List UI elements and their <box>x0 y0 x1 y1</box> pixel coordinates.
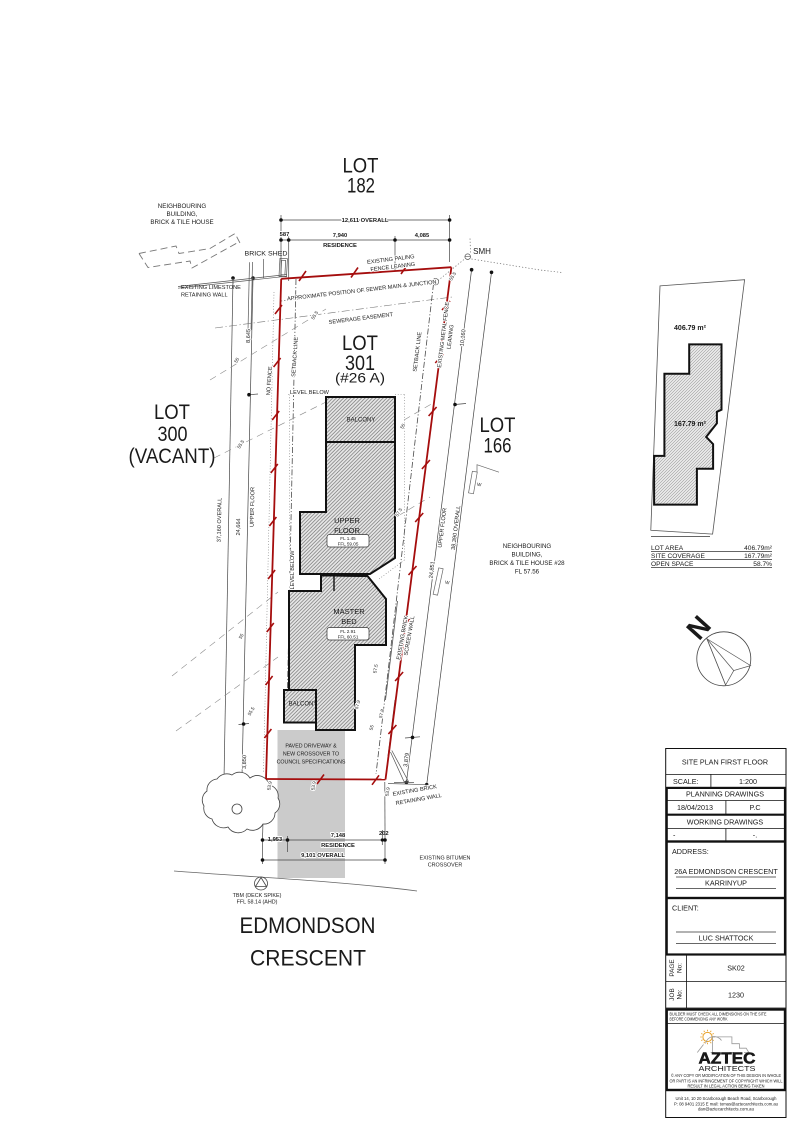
svg-text:© ANY COPY OR MODIFICATION OF: © ANY COPY OR MODIFICATION OF THIS DESIG… <box>671 1072 781 1078</box>
svg-text:12,611 OVERALL: 12,611 OVERALL <box>342 218 389 224</box>
svg-text:37,160 OVERALL: 37,160 OVERALL <box>217 498 224 543</box>
svg-text:SCALE:: SCALE: <box>673 777 699 786</box>
svg-text:8,645: 8,645 <box>246 329 252 343</box>
svg-text:LEVEL BELOW: LEVEL BELOW <box>290 390 330 396</box>
svg-text:KARRINYUP: KARRINYUP <box>705 879 747 888</box>
svg-text:BRICK & TILE HOUSE #28: BRICK & TILE HOUSE #28 <box>489 560 565 567</box>
svg-text:(#26 A): (#26 A) <box>335 370 385 386</box>
svg-text:OPEN SPACE: OPEN SPACE <box>651 561 694 568</box>
svg-text:WORKING DRAWINGS: WORKING DRAWINGS <box>687 818 764 827</box>
svg-text:18/04/2013: 18/04/2013 <box>677 803 713 812</box>
svg-text:P.C: P.C <box>749 803 760 812</box>
svg-text:OR PART IS AN INFRINGEMENT OF: OR PART IS AN INFRINGEMENT OF COPYRIGHT … <box>670 1078 783 1083</box>
svg-text:NEW CROSSOVER TO: NEW CROSSOVER TO <box>283 752 339 758</box>
svg-text:UPPER: UPPER <box>334 516 360 525</box>
svg-text:406.79m²: 406.79m² <box>744 545 773 552</box>
svg-text:No:: No: <box>677 989 684 999</box>
svg-text:EXISTING BITUMEN: EXISTING BITUMEN <box>420 856 471 862</box>
svg-text:PAGE: PAGE <box>669 959 676 976</box>
svg-text:SMH: SMH <box>473 247 491 256</box>
svg-text:RESIDENCE: RESIDENCE <box>323 243 357 249</box>
svg-text:167.79m²: 167.79m² <box>744 553 773 560</box>
svg-text:FFL 60.51: FFL 60.51 <box>338 635 359 640</box>
svg-text:FLOOR: FLOOR <box>334 526 360 535</box>
svg-text:LOT AREA: LOT AREA <box>651 545 684 552</box>
svg-text:dan@aztecarchitects.com.au: dan@aztecarchitects.com.au <box>698 1107 754 1112</box>
svg-text:3,850: 3,850 <box>242 755 248 769</box>
svg-text:LOT: LOT <box>154 400 190 424</box>
svg-text:EDMONDSON: EDMONDSON <box>240 913 376 938</box>
svg-text:NEIGHBOURING: NEIGHBOURING <box>503 543 552 550</box>
svg-text:300: 300 <box>158 422 188 446</box>
svg-text:BUILDING,: BUILDING, <box>512 552 543 559</box>
svg-text:BALCONY: BALCONY <box>347 418 376 424</box>
svg-text:167.79 m²: 167.79 m² <box>674 421 707 428</box>
svg-text:BRICK & TILE HOUSE: BRICK & TILE HOUSE <box>150 219 213 226</box>
svg-text:4,085: 4,085 <box>415 233 430 239</box>
svg-text:7,148: 7,148 <box>331 833 346 839</box>
svg-text:RESIDENCE: RESIDENCE <box>321 843 355 849</box>
svg-text:BUILDING,: BUILDING, <box>167 211 198 218</box>
svg-text:Unit 14, 10 20 Scarborough Bea: Unit 14, 10 20 Scarborough Beach Road, S… <box>676 1096 777 1101</box>
svg-text:ARCHITECTS: ARCHITECTS <box>699 1066 756 1073</box>
svg-text:406.79 m²: 406.79 m² <box>674 325 707 332</box>
svg-text:587: 587 <box>280 232 290 238</box>
svg-text:202: 202 <box>379 831 389 837</box>
svg-text:PAVED DRIVEWAY &: PAVED DRIVEWAY & <box>285 744 337 750</box>
svg-text:1230: 1230 <box>728 991 744 1000</box>
svg-text:UPPER FLOOR: UPPER FLOOR <box>250 487 257 527</box>
svg-text:SK02: SK02 <box>727 964 745 973</box>
svg-text:PLANNING DRAWINGS: PLANNING DRAWINGS <box>686 790 764 799</box>
svg-text:BRICK SHED: BRICK SHED <box>245 251 288 258</box>
svg-text:EXISTING LIMESTONE: EXISTING LIMESTONE <box>181 285 241 291</box>
svg-text:9,101 OVERALL: 9,101 OVERALL <box>301 853 345 859</box>
svg-text:NEIGHBOURING: NEIGHBOURING <box>158 203 207 210</box>
svg-text:MASTER: MASTER <box>333 607 365 616</box>
svg-text:CRESCENT: CRESCENT <box>250 945 366 970</box>
svg-text:24,664: 24,664 <box>236 518 242 535</box>
svg-text:SITE PLAN FIRST FLOOR: SITE PLAN FIRST FLOOR <box>682 758 768 767</box>
svg-text:166: 166 <box>484 433 512 457</box>
svg-text:RESULT IN LEGAL ACTION BEING T: RESULT IN LEGAL ACTION BEING TAKEN <box>688 1084 765 1089</box>
svg-text:LEVEL BELOW: LEVEL BELOW <box>290 550 296 590</box>
svg-text:1:200: 1:200 <box>739 777 757 786</box>
svg-text:RETAINING WALL: RETAINING WALL <box>181 293 228 299</box>
svg-text:(VACANT): (VACANT) <box>129 444 216 468</box>
svg-text:JOB: JOB <box>669 988 676 1000</box>
svg-text:182: 182 <box>347 174 375 198</box>
svg-text:FFL 59.05: FFL 59.05 <box>338 542 359 547</box>
svg-text:-.: -. <box>753 831 757 840</box>
svg-text:No:: No: <box>677 963 684 973</box>
svg-text:ADDRESS:: ADDRESS: <box>672 847 709 856</box>
svg-text:BEFORE COMMENCING ANY WORK: BEFORE COMMENCING ANY WORK <box>670 1016 728 1021</box>
svg-text:COUNCIL SPECIFICATIONS: COUNCIL SPECIFICATIONS <box>277 760 346 766</box>
svg-text:26A EDMONDSON CRESCENT: 26A EDMONDSON CRESCENT <box>674 867 778 876</box>
svg-text:BALCONY: BALCONY <box>289 702 318 708</box>
svg-text:SITE COVERAGE: SITE COVERAGE <box>651 553 705 560</box>
svg-text:7,940: 7,940 <box>333 233 348 239</box>
svg-text:58.7%: 58.7% <box>753 561 772 568</box>
svg-text:FFL 58.14 (AHD): FFL 58.14 (AHD) <box>237 900 278 906</box>
svg-text:TBM (DECK SPIKE): TBM (DECK SPIKE) <box>233 893 282 899</box>
svg-text:LUC SHATTOCK: LUC SHATTOCK <box>699 934 754 943</box>
svg-text:FL 57.56: FL 57.56 <box>515 569 540 576</box>
svg-text:BED: BED <box>341 617 357 626</box>
svg-text:FL 1.45: FL 1.45 <box>340 536 356 541</box>
svg-text:CLIENT:: CLIENT: <box>672 904 699 913</box>
svg-text:P: 08 9401 2315 E mail: toma: P: 08 9401 2315 E mail: tomas@aztecarchi… <box>674 1101 778 1106</box>
svg-text:CROSSOVER: CROSSOVER <box>428 863 463 869</box>
svg-text:FL 2.91: FL 2.91 <box>340 629 356 634</box>
